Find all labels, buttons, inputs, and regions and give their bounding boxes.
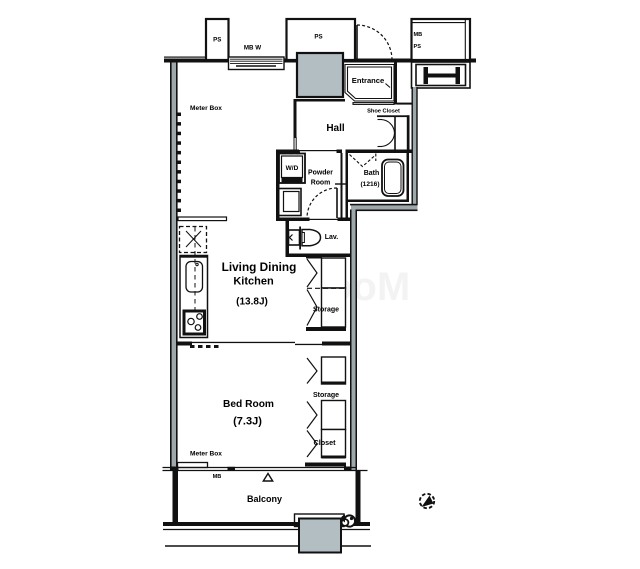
svg-text:Meter Box: Meter Box: [190, 451, 222, 458]
svg-text:Storage: Storage: [313, 392, 339, 399]
svg-text:(7.3J): (7.3J): [233, 416, 262, 428]
svg-text:PS: PS: [414, 44, 422, 50]
svg-text:(13.8J): (13.8J): [236, 297, 268, 308]
svg-text:Storage: Storage: [313, 306, 339, 313]
svg-text:Living Dining: Living Dining: [222, 260, 297, 274]
svg-text:MB W: MB W: [244, 45, 261, 52]
svg-text:(1216): (1216): [360, 181, 379, 188]
svg-text:W/D: W/D: [286, 165, 299, 172]
svg-text:Room: Room: [311, 180, 331, 187]
svg-text:Kitchen: Kitchen: [233, 276, 274, 288]
svg-text:Closet: Closet: [314, 438, 337, 447]
svg-text:Bath: Bath: [364, 170, 380, 177]
svg-text:Lav.: Lav.: [325, 234, 339, 241]
svg-text:Bed Room: Bed Room: [223, 399, 274, 410]
svg-text:PS: PS: [314, 34, 322, 41]
svg-text:Hall: Hall: [326, 123, 345, 134]
svg-text:PS: PS: [213, 37, 221, 44]
svg-text:Balcony: Balcony: [247, 494, 282, 504]
svg-text:MB: MB: [213, 474, 222, 480]
svg-text:MB: MB: [414, 32, 423, 38]
svg-text:Meter Box: Meter Box: [190, 105, 222, 112]
svg-text:Shoe Closet: Shoe Closet: [367, 109, 400, 115]
svg-text:Powder: Powder: [308, 170, 333, 177]
svg-text:Entrance: Entrance: [352, 76, 385, 85]
